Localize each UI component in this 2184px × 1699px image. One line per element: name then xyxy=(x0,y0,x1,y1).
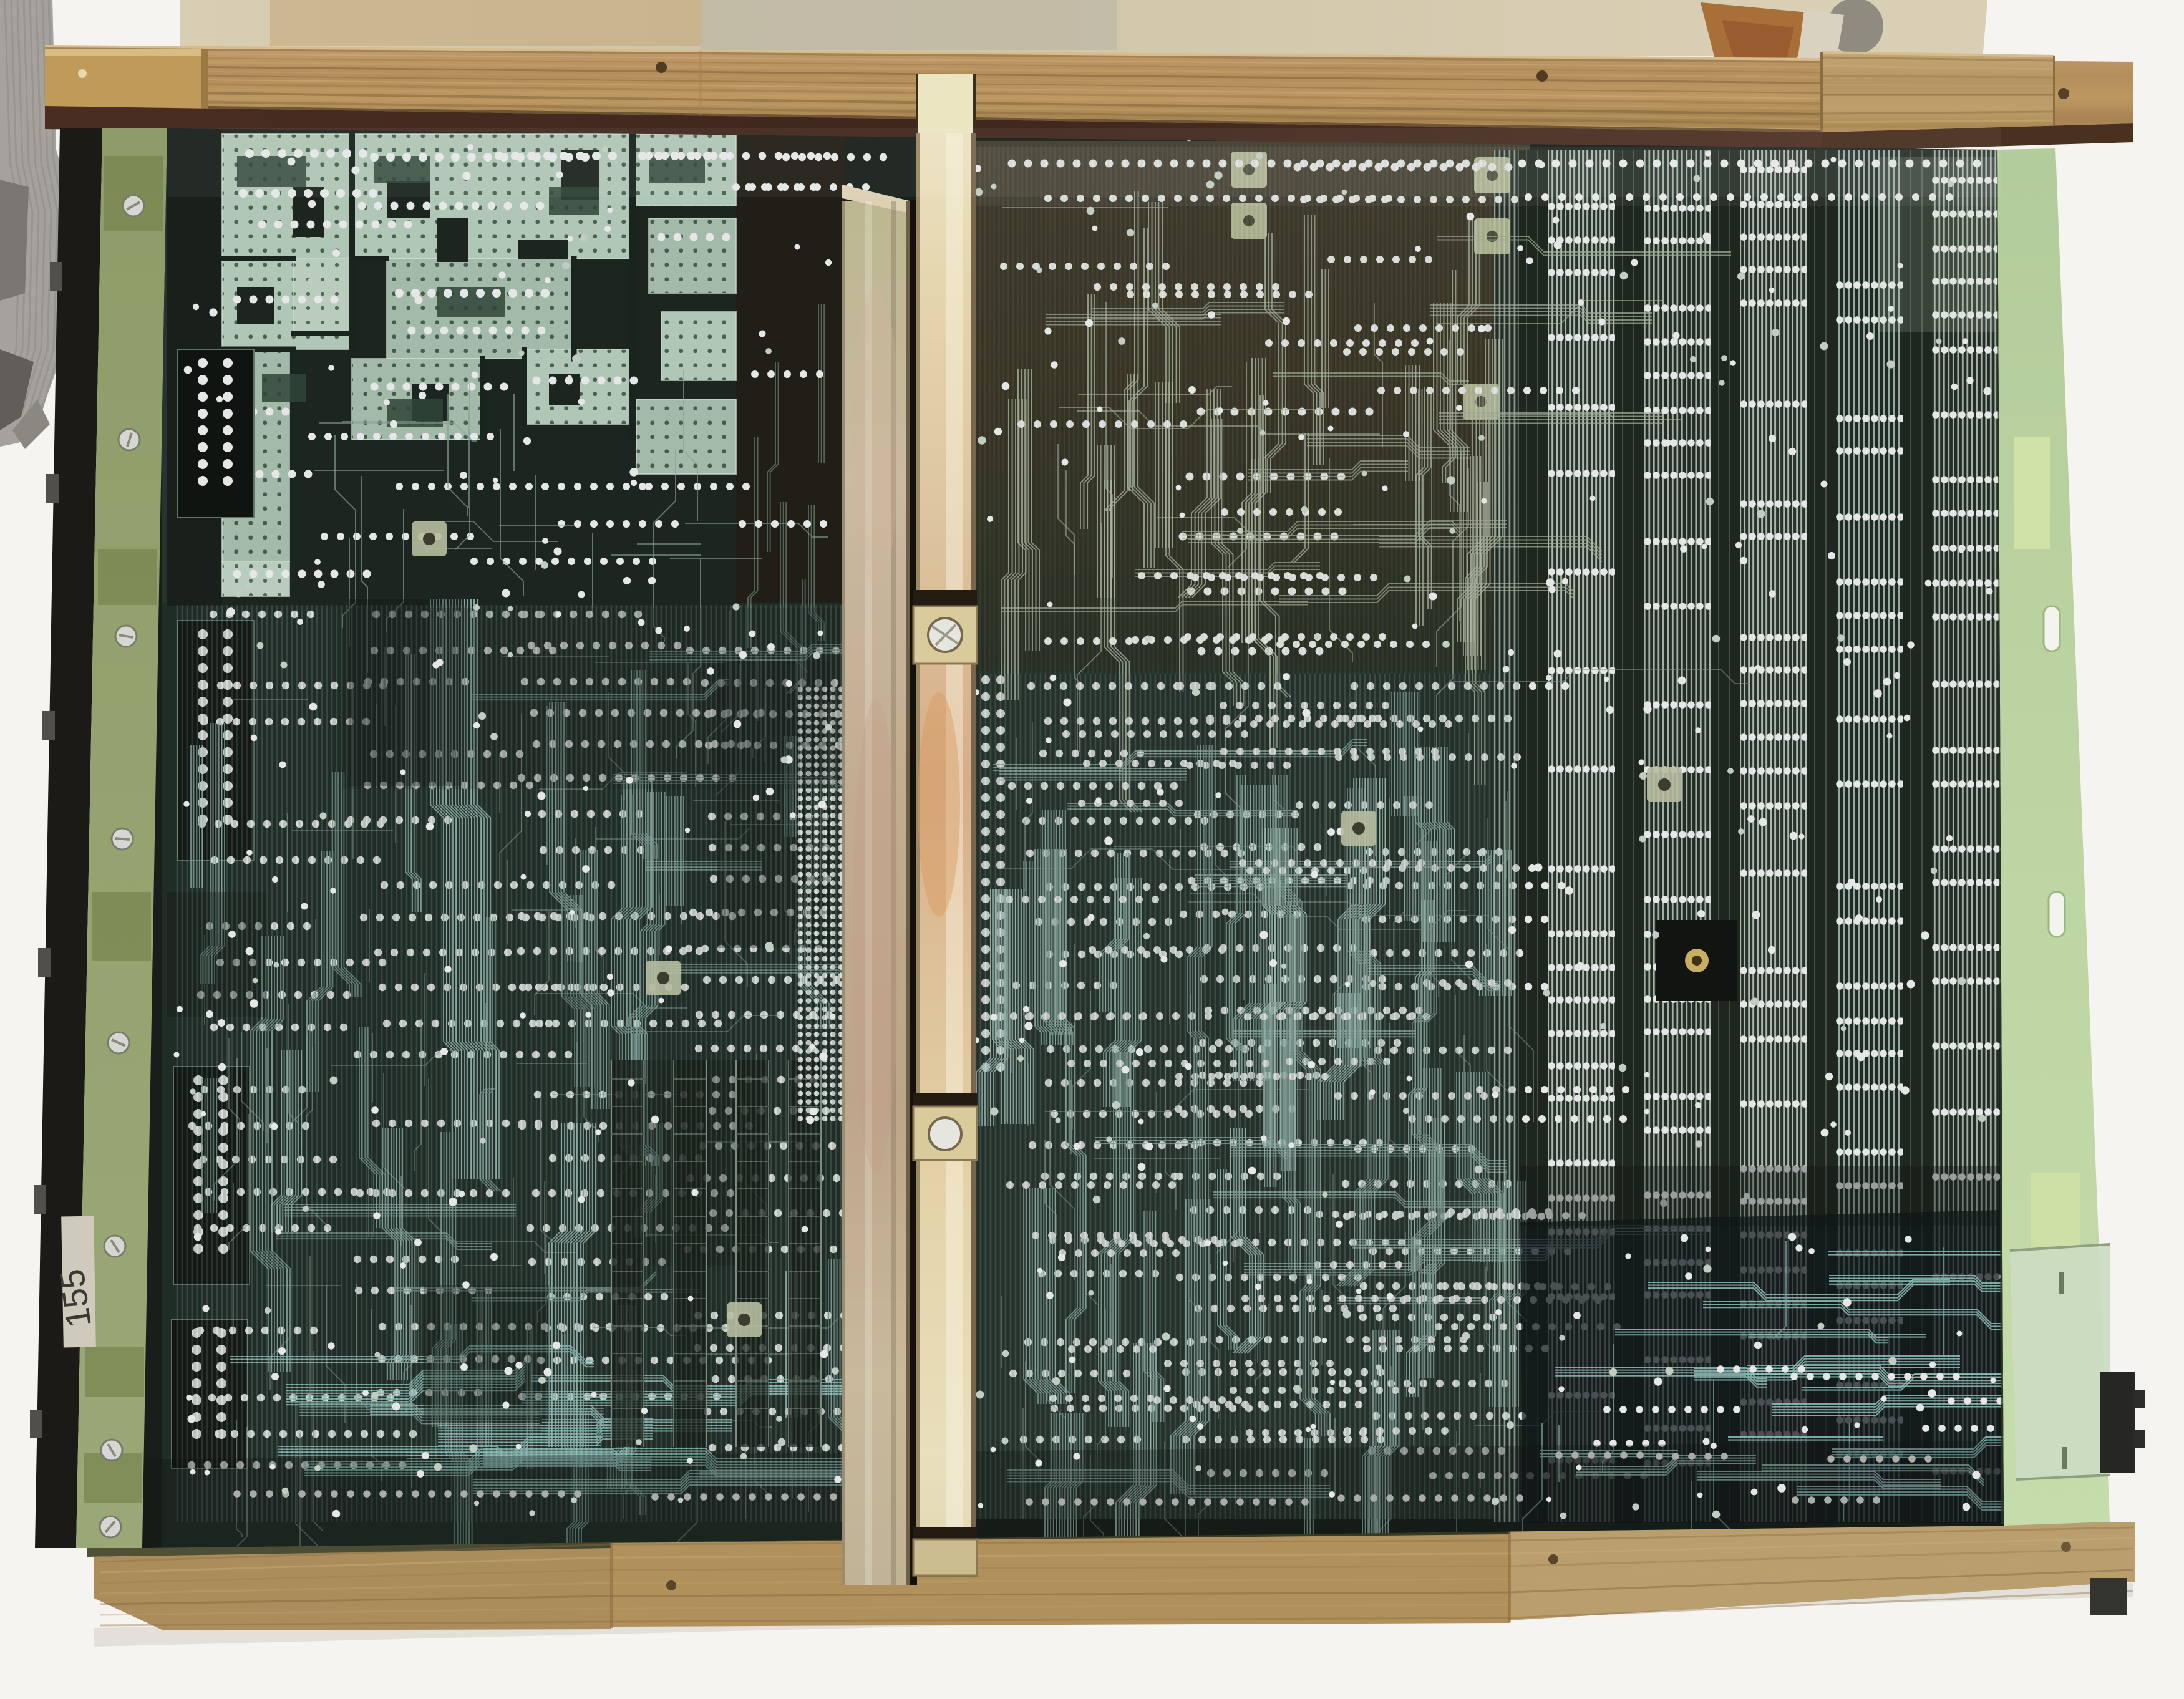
svg-text:155: 155 xyxy=(51,1267,98,1330)
